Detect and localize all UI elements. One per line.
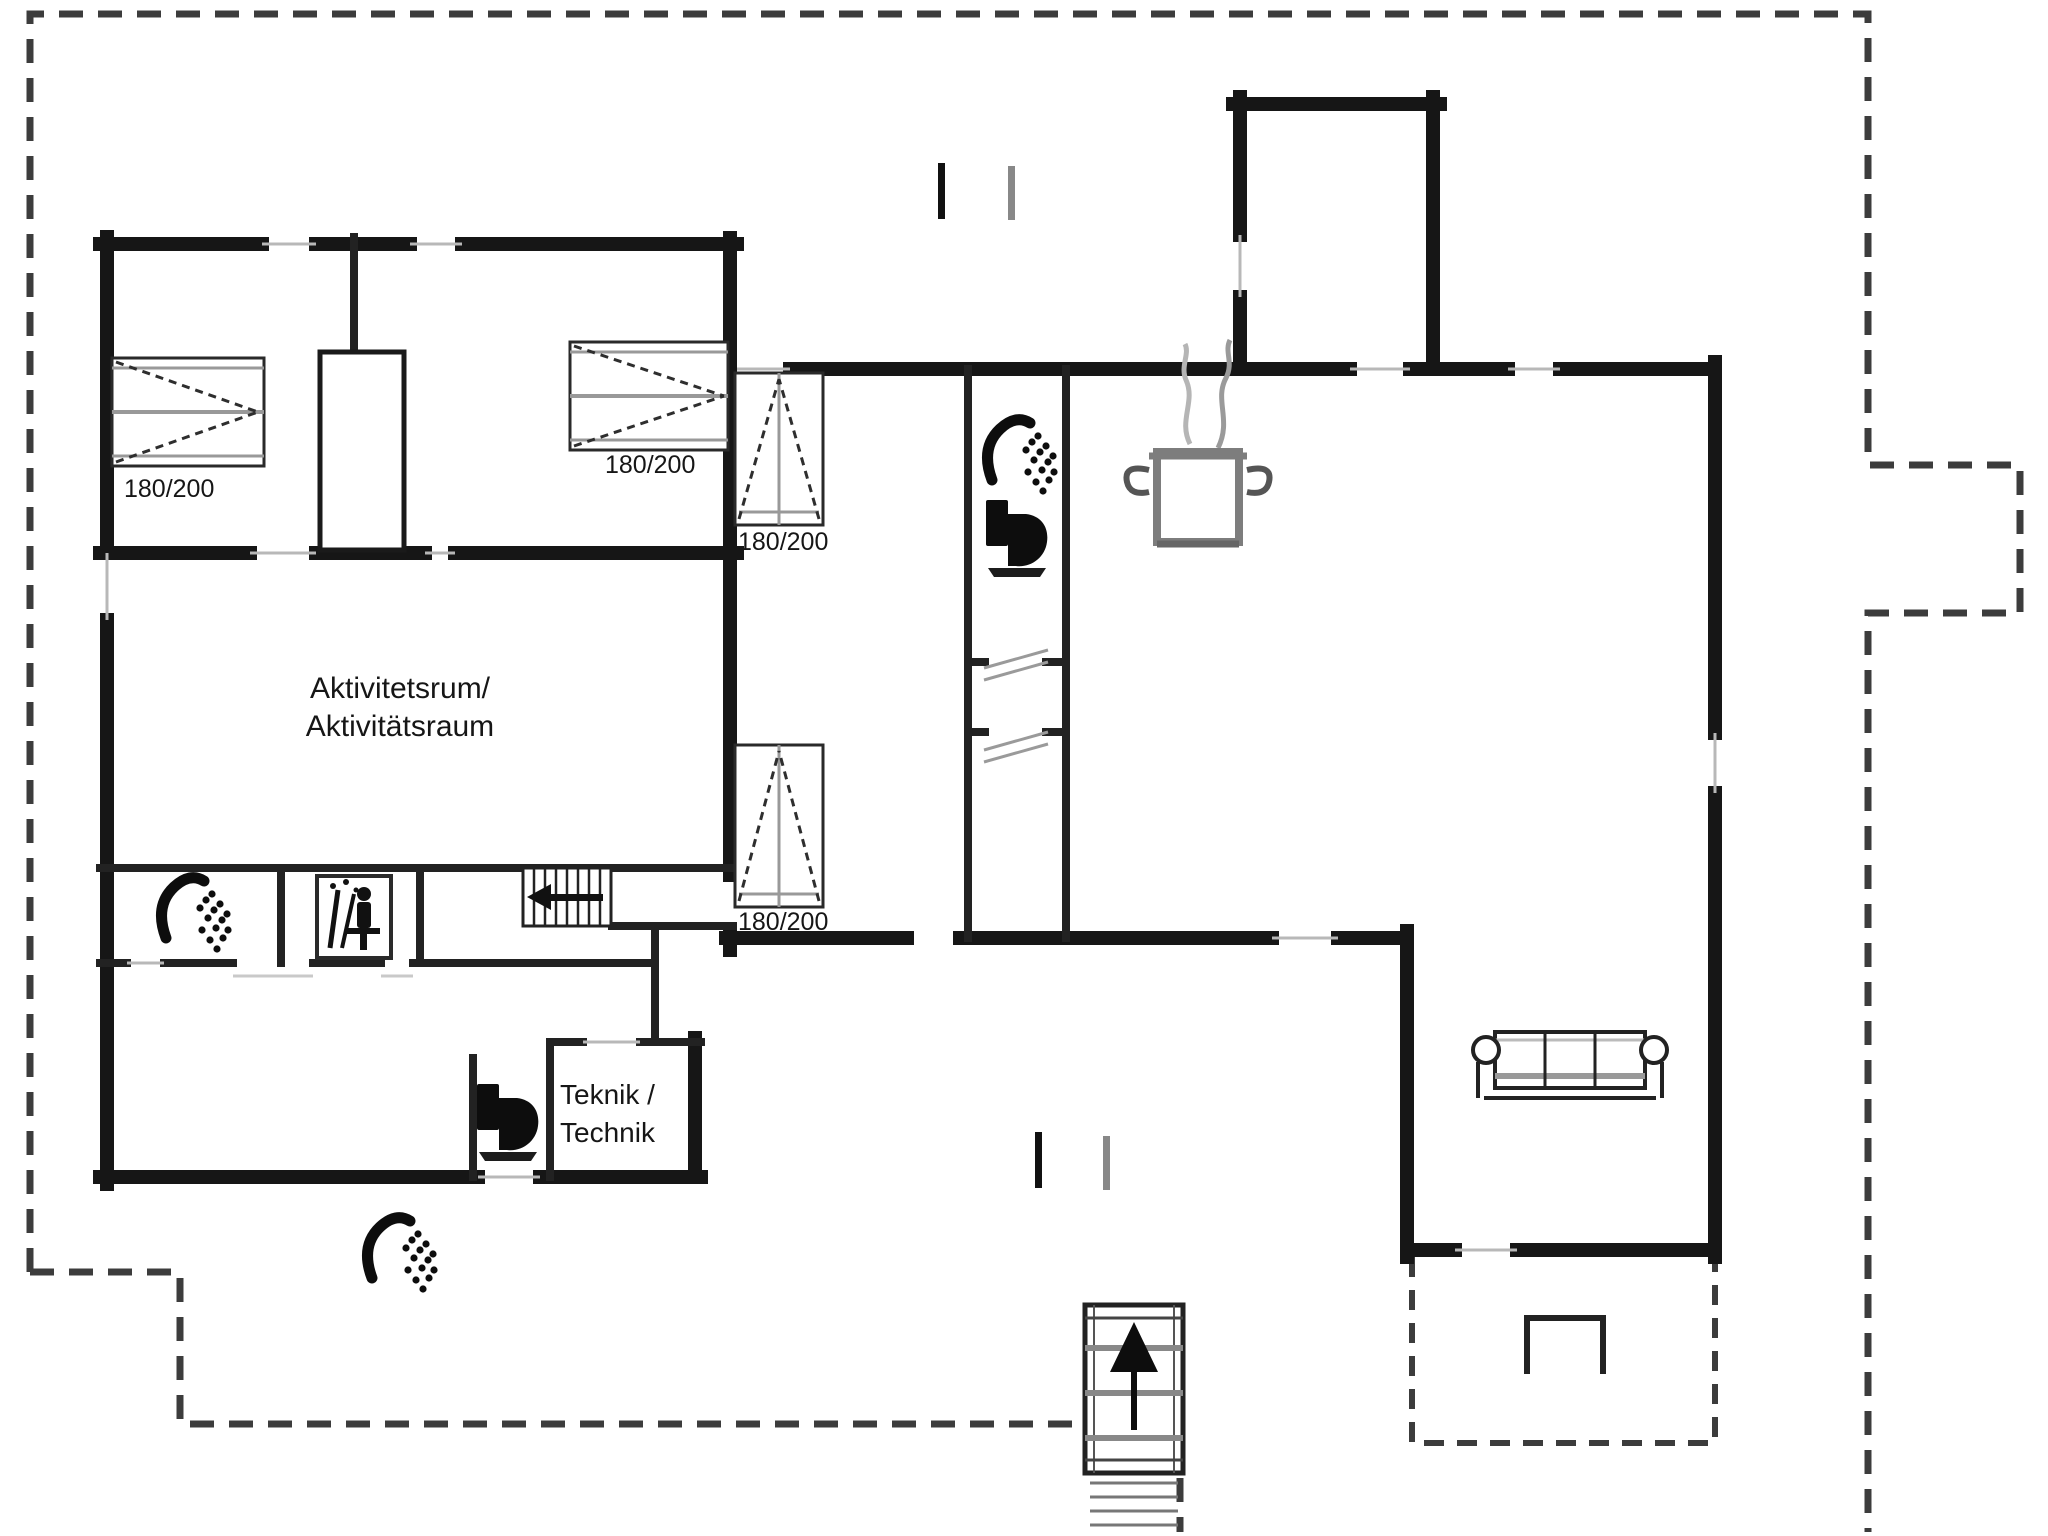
terrace-boundary — [1412, 1257, 1715, 1443]
sauna-icon — [317, 876, 391, 958]
shower-icon — [162, 878, 232, 953]
floor-plan-svg: Aktivitetsrum/ Aktivitätsraum Teknik / T… — [0, 0, 2048, 1536]
activity-room-label-line2: Aktivitätsraum — [306, 710, 494, 743]
boundary-bottom-left — [30, 1272, 1082, 1424]
toilet-icon — [986, 500, 1047, 577]
bed3-size-label: 180/200 — [738, 528, 828, 556]
toilet-icon — [477, 1084, 538, 1161]
bed1-size-label: 180/200 — [124, 475, 214, 503]
wardrobe — [320, 352, 404, 550]
stairs-corridor — [523, 868, 611, 926]
grill-icon — [1527, 1318, 1603, 1374]
stairs-entrance — [1085, 1305, 1183, 1525]
sofa — [1473, 1032, 1667, 1098]
shower-icon — [368, 1218, 438, 1293]
door-swing-marks — [984, 650, 1048, 762]
bed4-size-label: 180/200 — [738, 908, 828, 936]
section-tick-marks — [938, 163, 1110, 1190]
activity-room-label-line1: Aktivitetsrum/ — [310, 672, 491, 705]
bed-1 — [112, 358, 264, 466]
shower-icon — [988, 420, 1058, 495]
beds — [112, 342, 823, 907]
technik-room-label-line1: Teknik / — [560, 1079, 655, 1110]
floor-plan-canvas: Aktivitetsrum/ Aktivitätsraum Teknik / T… — [0, 0, 2048, 1536]
bed2-size-label: 180/200 — [605, 451, 695, 479]
bed-3 — [735, 373, 823, 525]
technik-room-label-line2: Technik — [560, 1117, 656, 1148]
bed-2 — [570, 342, 728, 450]
bed-4 — [735, 745, 823, 907]
